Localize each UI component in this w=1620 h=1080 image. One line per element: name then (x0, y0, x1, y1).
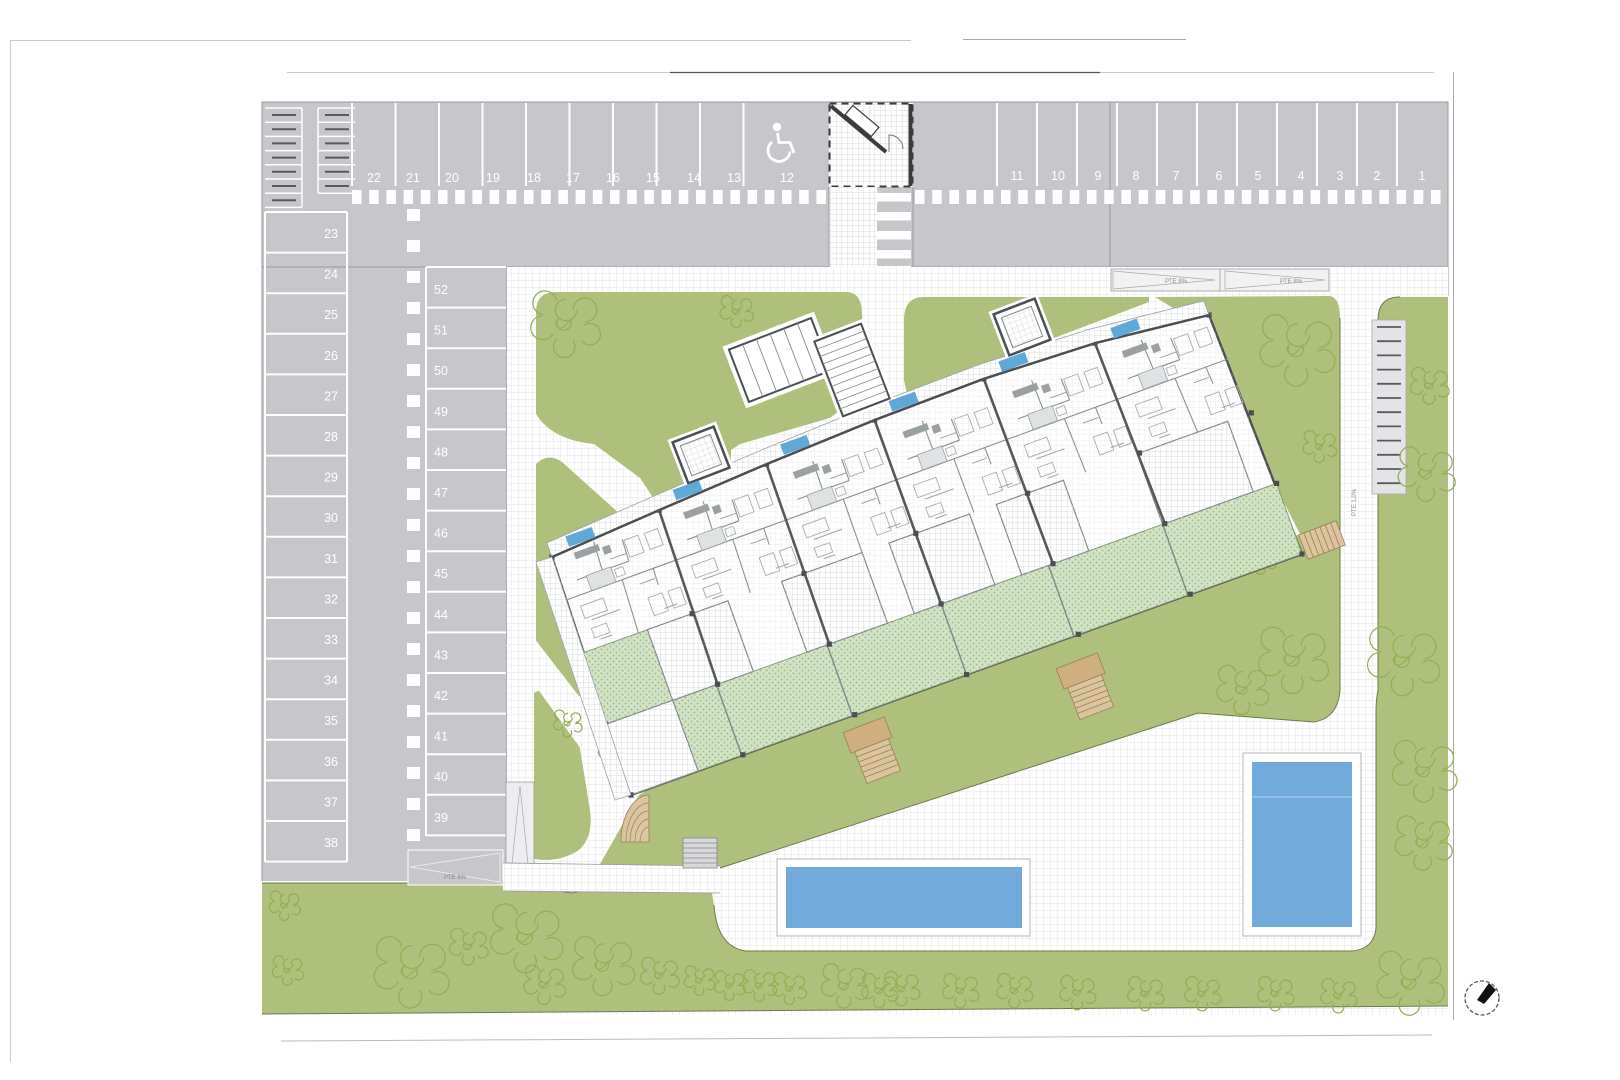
svg-text:9: 9 (1095, 169, 1102, 183)
svg-text:43: 43 (434, 648, 448, 662)
svg-text:32: 32 (324, 592, 338, 606)
svg-text:30: 30 (324, 511, 338, 525)
svg-text:25: 25 (324, 308, 338, 322)
svg-text:40: 40 (434, 770, 448, 784)
svg-text:45: 45 (434, 567, 448, 581)
svg-text:27: 27 (324, 389, 338, 403)
svg-text:50: 50 (434, 364, 448, 378)
svg-text:PTE 8%: PTE 8% (1280, 279, 1303, 285)
svg-text:16: 16 (606, 171, 620, 185)
svg-text:46: 46 (434, 527, 448, 541)
svg-text:41: 41 (434, 730, 448, 744)
svg-text:47: 47 (434, 486, 448, 500)
svg-text:42: 42 (434, 689, 448, 703)
svg-text:PTE 6%: PTE 6% (444, 875, 467, 881)
svg-text:48: 48 (434, 445, 448, 459)
svg-text:10: 10 (1051, 169, 1065, 183)
svg-text:36: 36 (324, 755, 338, 769)
svg-text:12: 12 (780, 171, 794, 185)
svg-text:13: 13 (727, 171, 741, 185)
svg-text:33: 33 (324, 633, 338, 647)
svg-text:20: 20 (445, 171, 459, 185)
svg-text:35: 35 (324, 714, 338, 728)
svg-text:PTE 1,0%: PTE 1,0% (1352, 488, 1358, 516)
svg-text:22: 22 (367, 171, 381, 185)
svg-text:4: 4 (1298, 169, 1305, 183)
svg-text:18: 18 (527, 171, 541, 185)
svg-text:51: 51 (434, 324, 448, 338)
svg-text:49: 49 (434, 405, 448, 419)
svg-text:24: 24 (324, 268, 338, 282)
svg-text:44: 44 (434, 608, 448, 622)
svg-text:6: 6 (1216, 169, 1223, 183)
svg-text:8: 8 (1133, 169, 1140, 183)
svg-text:2: 2 (1374, 169, 1381, 183)
svg-text:29: 29 (324, 471, 338, 485)
svg-text:15: 15 (646, 171, 660, 185)
svg-text:19: 19 (486, 171, 500, 185)
svg-text:28: 28 (324, 430, 338, 444)
svg-text:5: 5 (1255, 169, 1262, 183)
svg-text:7: 7 (1173, 169, 1180, 183)
svg-text:23: 23 (324, 227, 338, 241)
svg-text:21: 21 (406, 171, 420, 185)
svg-text:37: 37 (324, 795, 338, 809)
svg-text:38: 38 (324, 836, 338, 850)
svg-text:26: 26 (324, 349, 338, 363)
svg-text:52: 52 (434, 283, 448, 297)
svg-text:31: 31 (324, 552, 338, 566)
svg-text:14: 14 (687, 171, 701, 185)
svg-text:PTE 8%: PTE 8% (1165, 279, 1188, 285)
svg-text:34: 34 (324, 674, 338, 688)
svg-text:11: 11 (1011, 169, 1024, 183)
svg-text:1: 1 (1419, 169, 1426, 183)
svg-text:17: 17 (566, 171, 580, 185)
svg-text:3: 3 (1337, 169, 1344, 183)
svg-text:39: 39 (434, 811, 448, 825)
